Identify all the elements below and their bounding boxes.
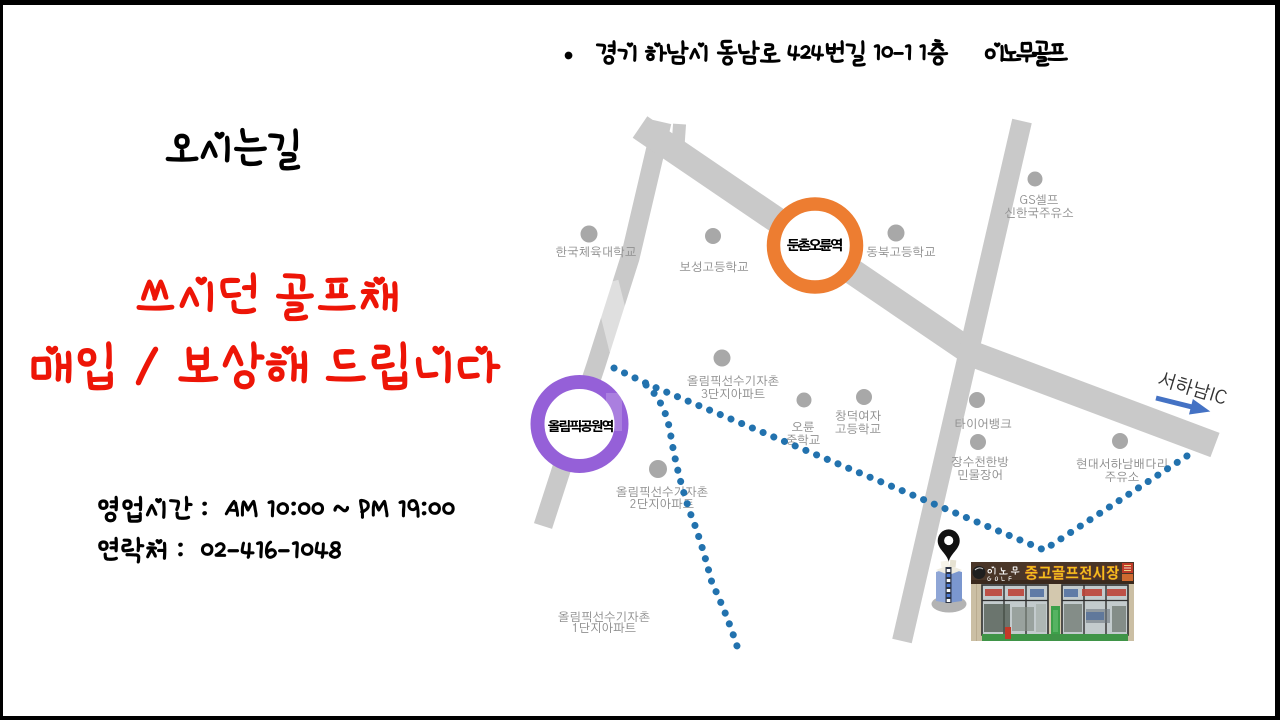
svg-text:올림픽선수기자촌: 올림픽선수기자촌 (687, 375, 779, 388)
svg-text:현대서하남배다리: 현대서하남배다리 (1076, 458, 1168, 471)
svg-text:중학교: 중학교 (786, 434, 821, 447)
svg-text:1단지아파트: 1단지아파트 (572, 622, 636, 635)
svg-text:오륜: 오륜 (791, 422, 814, 434)
svg-text:주유소: 주유소 (1105, 471, 1140, 484)
svg-text:보성고등학교: 보성고등학교 (679, 261, 748, 274)
svg-text:올림픽선수기자촌: 올림픽선수기자촌 (616, 486, 708, 499)
svg-text:3단지아파트: 3단지아파트 (701, 388, 765, 401)
svg-text:둔촌오륜역: 둔촌오륜역 (787, 238, 844, 253)
svg-text:장수천한방: 장수천한방 (951, 456, 1009, 469)
svg-text:타이어뱅크: 타이어뱅크 (954, 418, 1012, 431)
svg-text:창덕여자: 창덕여자 (835, 410, 881, 423)
svg-text:한국체육대학교: 한국체육대학교 (556, 246, 637, 259)
svg-text:동북고등학교: 동북고등학교 (866, 246, 935, 259)
svg-text:신한국주유소: 신한국주유소 (1004, 207, 1073, 220)
svg-text:중고골프전시장: 중고골프전시장 (1025, 566, 1120, 583)
svg-text:민물장어: 민물장어 (957, 469, 1003, 482)
svg-text:고등학교: 고등학교 (835, 423, 881, 436)
svg-text:올림픽공원역: 올림픽공원역 (548, 419, 615, 434)
svg-text:GOLF: GOLF (987, 575, 1015, 583)
svg-text:GS셀프: GS셀프 (1020, 194, 1059, 207)
